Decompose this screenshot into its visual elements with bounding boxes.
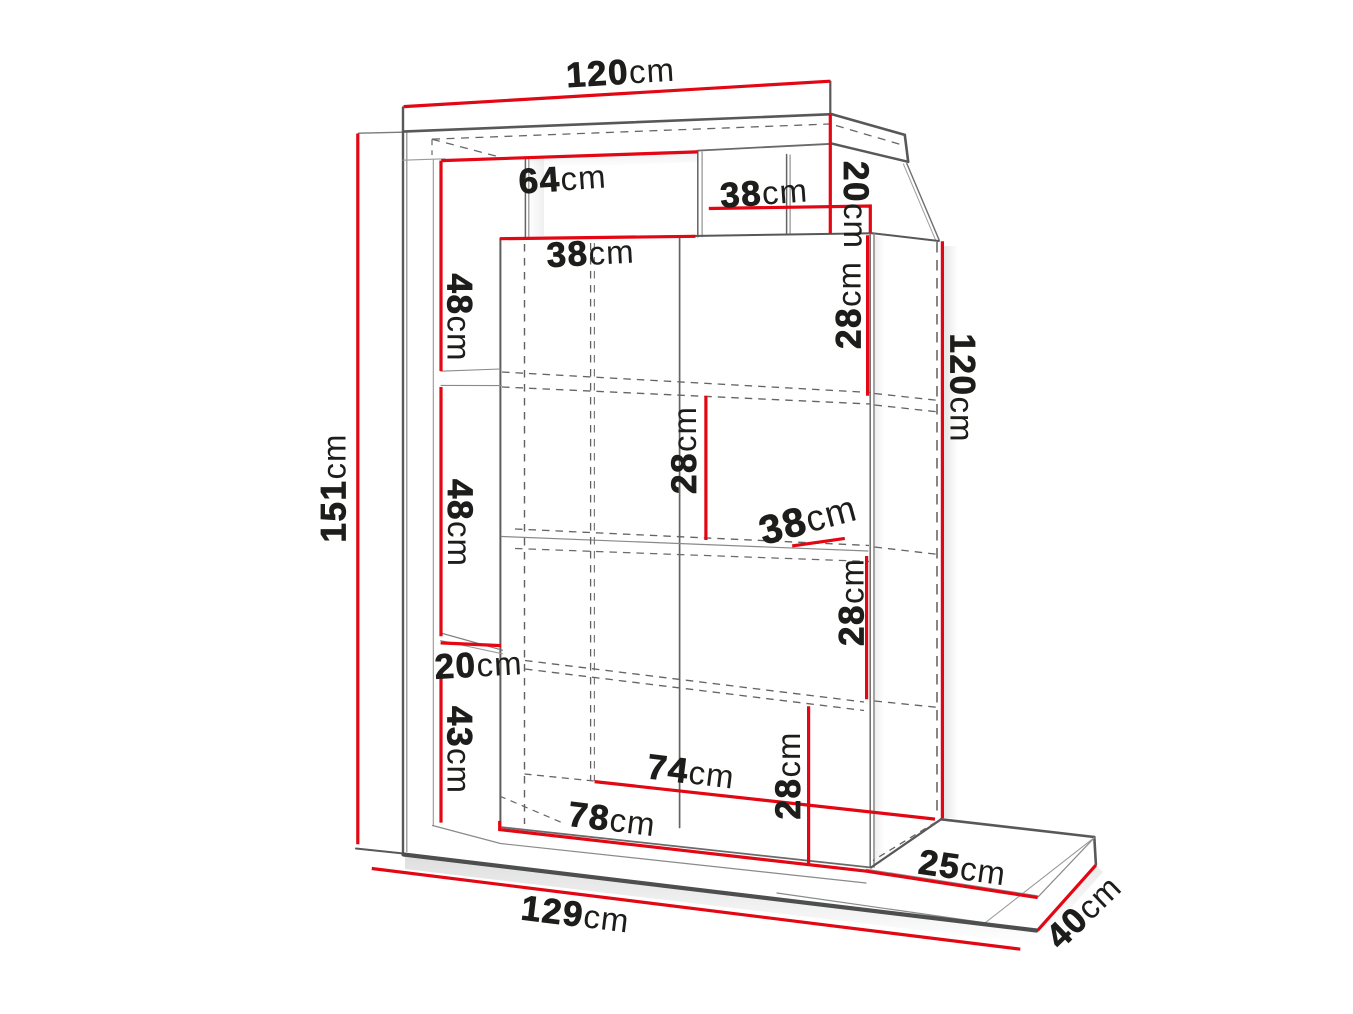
svg-text:28cm: 28cm <box>833 558 872 646</box>
svg-text:43cm: 43cm <box>440 706 479 794</box>
svg-text:48cm: 48cm <box>440 479 479 567</box>
svg-text:38cm: 38cm <box>719 170 809 215</box>
svg-text:38cm: 38cm <box>546 232 636 276</box>
svg-text:64cm: 64cm <box>517 156 607 201</box>
svg-text:20cm: 20cm <box>836 161 875 249</box>
svg-text:120cm: 120cm <box>565 50 676 96</box>
svg-text:28cm: 28cm <box>665 406 704 494</box>
svg-text:48cm: 48cm <box>440 274 479 362</box>
svg-text:120cm: 120cm <box>943 334 982 443</box>
svg-text:151cm: 151cm <box>315 434 354 543</box>
svg-text:28cm: 28cm <box>769 732 808 820</box>
svg-text:28cm: 28cm <box>830 261 869 349</box>
svg-text:20cm: 20cm <box>434 643 524 687</box>
